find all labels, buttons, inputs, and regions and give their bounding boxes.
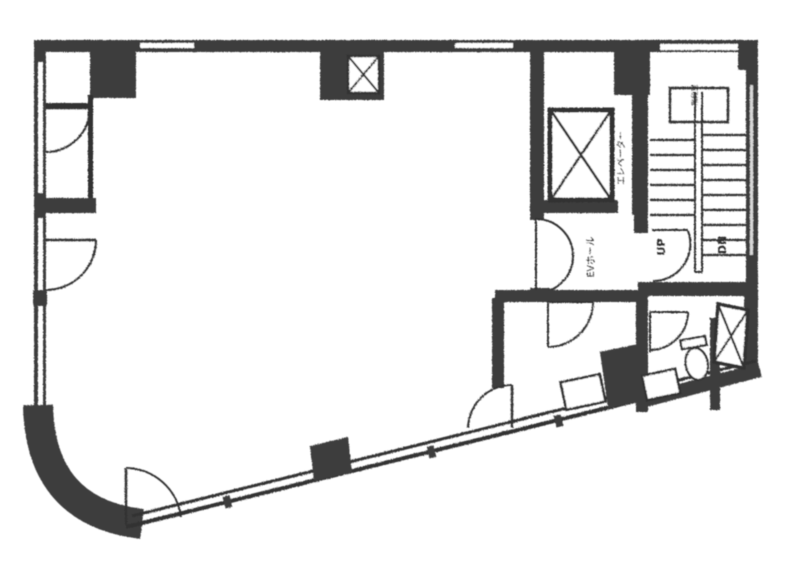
door-swing-arc [46, 240, 96, 290]
hall-south-wall [495, 290, 648, 302]
right-wall-window-line [750, 85, 753, 255]
column [600, 344, 646, 408]
pipe-shaft [320, 50, 384, 100]
double-door-swing-arc [536, 218, 573, 293]
window-mullion [554, 414, 564, 427]
top-right-corner-block [738, 40, 758, 70]
door-swing-arc [548, 302, 593, 347]
column-block [90, 50, 136, 98]
floor-plan-drawing: エレベーター EVホール [0, 0, 787, 563]
left-wall-inner [43, 40, 46, 430]
left-wall-outer [34, 40, 38, 430]
top-window-slit [140, 43, 194, 48]
corner-block [744, 282, 758, 312]
stairs-down-label: DN [716, 236, 729, 254]
stairwell: UP DN 階段室 [634, 85, 758, 313]
stairs-up-label: UP [655, 239, 668, 256]
window-mullion [427, 445, 437, 458]
stair-landing [670, 88, 728, 122]
stairwell-label: 階段室 [690, 85, 699, 106]
closet-south-wall [38, 198, 96, 213]
left-wall-pier [33, 290, 47, 306]
corridor-partition [492, 298, 504, 388]
door-swing-arc [46, 108, 90, 152]
stair-south-wall [638, 282, 758, 296]
top-window-slit [455, 43, 513, 48]
toilet-bowl-icon [680, 336, 712, 382]
wash-basin-icon [561, 374, 606, 410]
elevator-hall-label: EVホール [586, 236, 597, 278]
door-jamb [634, 213, 648, 233]
elevator-zone: エレベーター [530, 45, 650, 215]
column-block [614, 45, 650, 95]
elevator-shaft-x-icon [550, 110, 612, 200]
stair-treads-left [650, 140, 694, 215]
closet-top-left [38, 50, 136, 213]
door-swing-arc [468, 385, 512, 428]
main-room [60, 70, 460, 400]
elevator-label: エレベーター [616, 131, 627, 185]
elevator-west-wall [530, 52, 544, 215]
top-window-slit [660, 44, 742, 50]
elevator-hall: EVホール [495, 212, 648, 302]
pipe-shaft-x-icon [714, 304, 748, 368]
closet-divider [46, 103, 90, 107]
stair-handrail [695, 92, 702, 272]
floor-plan-page: エレベーター EVホール [0, 0, 787, 563]
window-mullion [223, 495, 233, 508]
wash-basin-icon [642, 369, 680, 401]
left-wall-pier [34, 40, 46, 62]
